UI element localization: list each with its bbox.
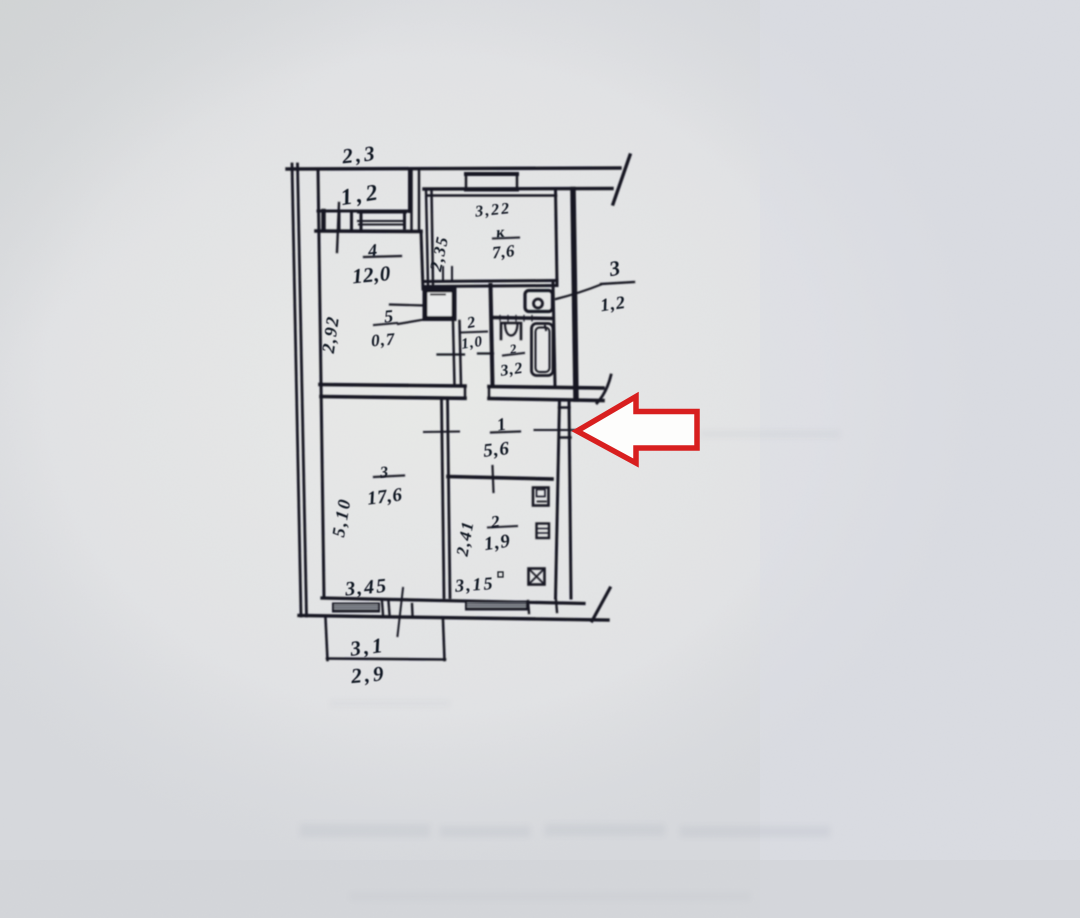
svg-text:3,15: 3,15 (453, 573, 495, 596)
svg-text:2,9: 2,9 (349, 661, 387, 688)
svg-text:12,0: 12,0 (351, 261, 392, 288)
svg-text:3,2: 3,2 (498, 360, 524, 380)
svg-text:0,7: 0,7 (370, 329, 396, 350)
svg-text:7,6: 7,6 (491, 241, 516, 262)
svg-text:1,2: 1,2 (599, 292, 627, 315)
svg-text:3,1: 3,1 (348, 633, 387, 661)
svg-text:17,6: 17,6 (366, 484, 404, 509)
svg-text:5,6: 5,6 (482, 438, 511, 462)
svg-text:3,45: 3,45 (343, 575, 389, 601)
svg-text:1,0: 1,0 (460, 334, 484, 353)
svg-text:2,3: 2,3 (340, 141, 379, 169)
svg-text:3: 3 (378, 464, 389, 482)
svg-text:5: 5 (383, 306, 394, 327)
svg-text:1,9: 1,9 (483, 531, 512, 556)
svg-text:4: 4 (366, 240, 378, 261)
